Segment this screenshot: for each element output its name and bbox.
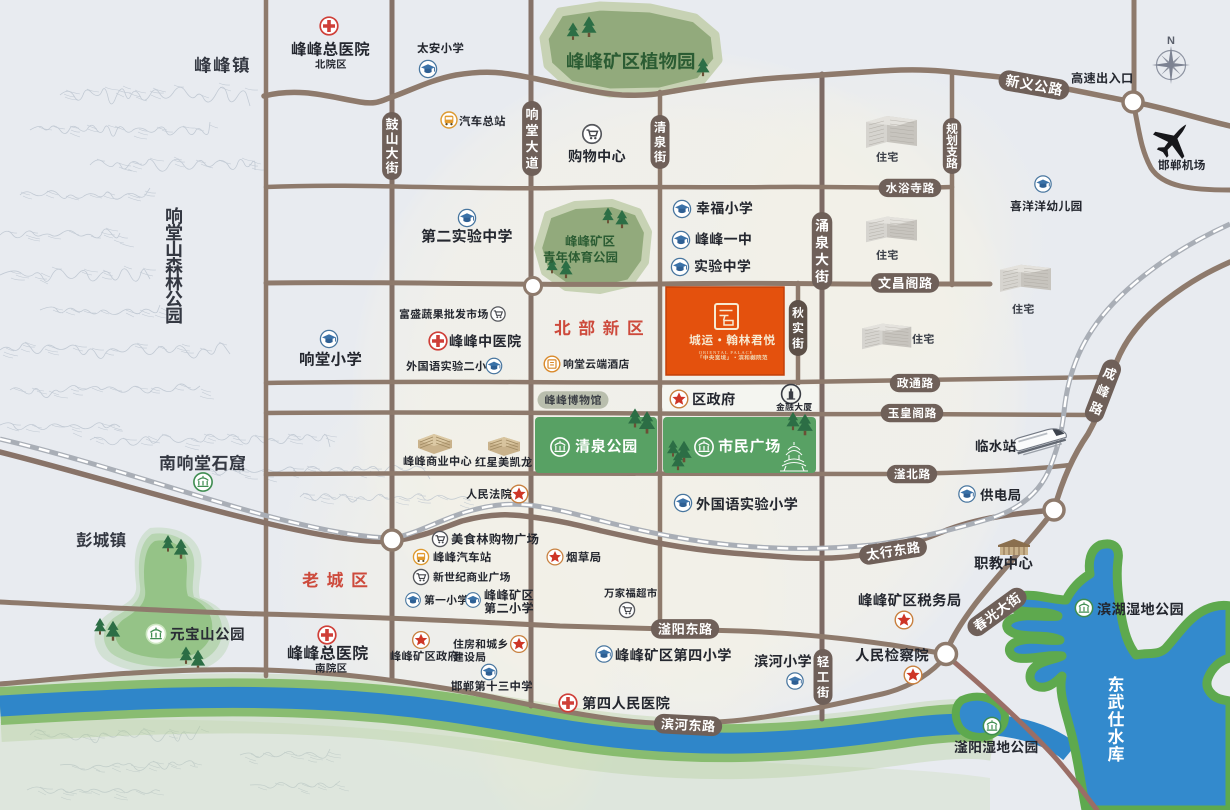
svg-text:ORIENTAL PALACE: ORIENTAL PALACE [699, 350, 754, 355]
svg-text:N: N [1167, 35, 1175, 47]
